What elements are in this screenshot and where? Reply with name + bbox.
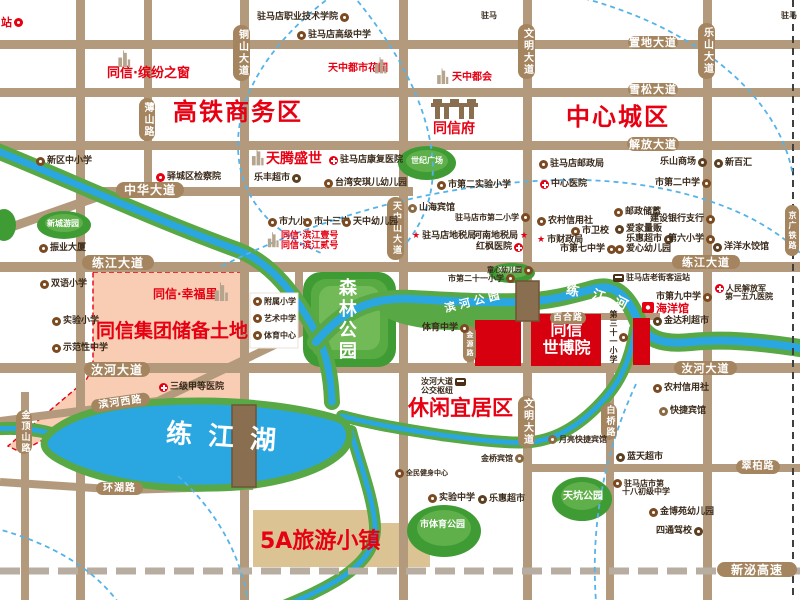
school-icon (428, 494, 437, 503)
school-icon (437, 181, 446, 190)
proj-label: 天腾盛世 (266, 152, 322, 167)
poi-text: 新区中小学 (47, 157, 92, 166)
poi-text: 乐惠超市 (626, 235, 662, 244)
school-icon (253, 297, 262, 306)
district-label: 休闲宜居区 (408, 397, 513, 419)
poi-text: 农村信用社 (548, 217, 593, 226)
poi-label: 体育中心 (253, 331, 296, 340)
hospital-icon (329, 156, 338, 165)
poi-label: 爱心幼儿园 (615, 245, 671, 254)
poi-label: 金博苑幼儿园 (649, 508, 714, 517)
poi-label: 驿城区检察院 (156, 173, 221, 182)
poi-text: 驻马 (781, 12, 797, 20)
poi-label: 第六小学 (668, 235, 715, 244)
poi-label: 第三十一小学 (609, 310, 628, 364)
poi-label: 驻马 (481, 12, 497, 20)
poi-label: 艺术中学 (253, 314, 296, 323)
poi-label: 蓝天超市 (616, 453, 663, 462)
poi-text: 山海宾馆 (419, 204, 455, 213)
poi-text: 驻马店老街客运站 (626, 274, 690, 282)
poi-text: 驻马店市第二小学 (455, 214, 519, 222)
poi-text: 爱心幼儿园 (626, 245, 671, 254)
road-label: 文明大道 (518, 396, 535, 448)
poi-text: 市第九中学 (656, 293, 701, 302)
poi-text: 新百汇 (725, 159, 752, 168)
poi-text: 驻马店邮政局 (550, 160, 604, 169)
proj-label: 同信府 (433, 122, 475, 137)
poi-text: 月亮快捷宾馆 (559, 436, 607, 444)
school-icon (303, 218, 312, 227)
car-icon (694, 527, 703, 536)
school-icon (253, 331, 262, 340)
school-icon (702, 179, 711, 188)
park-label: 市体育公园 (420, 521, 465, 530)
poi-label: 驻马店康复医院 (329, 156, 403, 165)
shop-icon (478, 495, 487, 504)
poi-label: 公交枢纽 (421, 387, 453, 395)
proj-label: 天中都会 (452, 73, 492, 84)
shop-icon (616, 453, 625, 462)
poi-text: 第六小学 (668, 235, 704, 244)
road-label: 练江大道 (672, 255, 740, 269)
poi-label: 农村信用社 (537, 217, 593, 226)
school-icon (268, 218, 277, 227)
poi-text: 农村信用社 (664, 384, 709, 393)
poi-text: 驻马店高级中学 (308, 31, 371, 40)
poi-label: 农村信用社 (653, 384, 709, 393)
poi-text: 爱家量贩 (626, 225, 662, 234)
school-icon (521, 213, 530, 222)
shop-icon (698, 158, 707, 167)
poi-label: 市第二十一小学 (448, 274, 515, 283)
hospital-icon (715, 284, 724, 293)
poi-label: 十八初级中学 (622, 488, 670, 496)
school-icon (324, 179, 333, 188)
district-label: 高铁商务区 (173, 100, 303, 125)
school-icon (613, 479, 622, 488)
bank-icon (653, 384, 662, 393)
park-label: 新城游园 (47, 220, 79, 228)
district-label: 5A旅游小镇 (260, 530, 380, 553)
poi-label: 三级甲等医院 (159, 383, 224, 392)
poi-text: 红枫医院 (476, 243, 512, 252)
poi-label: 中心医院 (540, 180, 587, 189)
proj-label: 同信·滨江贰号 (281, 242, 338, 251)
road-label: 翠柏路 (736, 460, 780, 474)
poi-label: 金达利超市 (653, 317, 709, 326)
poi-text: 公交枢纽 (421, 387, 453, 395)
hospital-icon (514, 243, 523, 252)
road-label: 环湖路 (96, 482, 143, 495)
poi-text: 金达利超市 (664, 317, 709, 326)
poi-text: 建设银行支行 (650, 215, 704, 224)
poi-text: 乐惠超市 (489, 495, 525, 504)
school-icon (506, 274, 515, 283)
poi-text: 站 (1, 17, 12, 28)
hotel-icon (548, 435, 557, 444)
building-icon (267, 230, 279, 249)
poi-text: 河南地税局 (473, 232, 518, 241)
poi-label: 驻马店高级中学 (297, 31, 371, 40)
poi-text: 双语小学 (51, 280, 87, 289)
poi-text: 实验中学 (439, 494, 475, 503)
poi-label: 红枫医院 (476, 243, 523, 252)
poi-label: 爱家量贩 (615, 225, 662, 234)
post-icon (614, 208, 623, 217)
poi-label: 体育中学 (422, 324, 469, 333)
poi-text: 蓝天超市 (627, 453, 663, 462)
school-icon (52, 317, 61, 326)
road-label: 汝河大道 (674, 361, 737, 375)
post-icon (539, 160, 548, 169)
poi-label: 建设银行支行 (650, 215, 715, 224)
road-label: 天中山大道 (387, 197, 404, 260)
poi-label: 市第九中学 (656, 293, 712, 302)
poi-text: 驿城区检察院 (167, 173, 221, 182)
poi-label: 四通驾校 (656, 527, 703, 536)
aquarium-icon (642, 302, 654, 313)
poi-label: 第一五九医院 (725, 293, 773, 301)
poi-label: 快捷宾馆 (659, 407, 706, 416)
road-label: 乐山大道 (698, 23, 715, 79)
poi-label: 天中幼儿园 (342, 218, 398, 227)
building-icon (251, 148, 264, 166)
poi-label: 实验小学 (52, 317, 99, 326)
road-label: 置地大道 (628, 36, 678, 49)
poi-label: 乐丰超市 (254, 174, 301, 183)
hospital-icon (159, 383, 168, 392)
poi-text: 乐丰超市 (254, 174, 290, 183)
poi-text: 驻马 (481, 12, 497, 20)
poi-label: 台湾安琪儿幼儿园 (324, 179, 407, 188)
road-label: 新泌高速 (717, 562, 797, 577)
location-map: 置地大道雪松大道解放大道中华大道练江大道练江大道汝河大道汝河大道滨河西路环湖路翠… (0, 0, 800, 600)
district-label: 中心城区 (566, 105, 670, 130)
poi-label: 双语小学 (40, 280, 87, 289)
building-icon (213, 282, 229, 301)
poi-text: 金桥宾馆 (481, 455, 513, 463)
road-label: 京广铁路 (785, 205, 799, 256)
road-label: 中华大道 (116, 182, 184, 198)
poi-text: 市九小 (279, 218, 306, 227)
school-icon (40, 280, 49, 289)
poi-label: 振业大厦 (39, 244, 86, 253)
gov-icon (156, 173, 165, 182)
poi-text: 四通驾校 (656, 527, 692, 536)
shop-icon (653, 317, 662, 326)
bus-icon (613, 274, 624, 282)
hotel-icon (659, 407, 668, 416)
star-icon: ★ (412, 232, 420, 241)
school-icon (52, 344, 61, 353)
poi-label: 附属小学 (253, 297, 296, 306)
poi-text: 市第二实验小学 (448, 181, 511, 190)
star-icon: ★ (537, 236, 545, 245)
road-label: 雪松大道 (628, 83, 678, 96)
poi-label: 金桥宾馆 (481, 454, 524, 463)
water-label: 练 (565, 284, 581, 300)
poi-text: 市第七中学 (560, 245, 605, 254)
school-icon (36, 157, 45, 166)
building-icon (436, 68, 449, 84)
poi-label: 示范性中学 (52, 344, 108, 353)
proj-label: 同信·缤纷之窗 (107, 67, 190, 81)
poi-label: 乐山商场 (660, 158, 707, 167)
bank-icon (706, 215, 715, 224)
poi-text: 艺术中学 (264, 315, 296, 323)
park-label: 天坑公园 (563, 492, 603, 503)
poi-label: 驻马店职业技术学院 (257, 13, 349, 22)
poi-label: 实验中学 (428, 494, 475, 503)
poi-text: 第一五九医院 (725, 293, 773, 301)
poi-label: 汝河大道 (421, 378, 466, 386)
school-icon (619, 333, 628, 342)
road-label: 汝河大道 (84, 362, 150, 377)
district-label: 同信集团储备土地 (96, 322, 248, 342)
shop-icon (713, 243, 722, 252)
road-label: 练江大道 (82, 255, 154, 270)
school-icon (342, 218, 351, 227)
poi-text: 示范性中学 (63, 344, 108, 353)
park-label: 森林公园 (336, 278, 355, 362)
poi-text: 驻马店康复医院 (340, 156, 403, 165)
poi-text: 体育中心 (264, 332, 296, 340)
road-label: 解放大道 (627, 137, 679, 151)
poi-label: 洋洋水饺馆 (713, 243, 769, 252)
train-icon (14, 18, 23, 27)
poi-text: 汝河大道 (421, 378, 453, 386)
poi-text: 市第二十一小学 (448, 275, 504, 283)
school-icon (524, 266, 533, 275)
shop-icon (615, 225, 624, 234)
hotel-icon (515, 454, 524, 463)
dot-icon (395, 469, 404, 478)
poi-text: 市第二中学 (655, 179, 700, 188)
poi-text: 金博苑幼儿园 (660, 508, 714, 517)
poi-text: 台湾安琪儿幼儿园 (335, 179, 407, 188)
road-label: 文明大道 (518, 24, 535, 79)
bank-icon (537, 217, 546, 226)
poi-label: 月亮快捷宾馆 (548, 435, 607, 444)
poi-label: 乐惠超市 (478, 495, 525, 504)
poi-text: 驻马店职业技术学院 (257, 13, 338, 22)
poi-text: 十八初级中学 (622, 488, 670, 496)
road-label: 铜山大道 (233, 25, 250, 81)
poi-text: 附属小学 (264, 298, 296, 306)
poi-label: 全民健身中心 (395, 469, 448, 478)
shop-icon (292, 174, 301, 183)
school-icon (340, 13, 349, 22)
poi-text: 天中幼儿园 (353, 218, 398, 227)
poi-label: ★驻马店地税局 (412, 232, 476, 241)
expo-label: 世博院 (533, 340, 600, 357)
poi-text: 三级甲等医院 (170, 383, 224, 392)
poi-text: 全民健身中心 (406, 470, 448, 477)
poi-label: 驻马 (781, 12, 797, 20)
bus-icon (455, 378, 466, 386)
gate-icon (431, 97, 478, 120)
poi-label: 新百汇 (714, 159, 752, 168)
hospital-icon (540, 180, 549, 189)
poi-label: 站 (1, 17, 23, 28)
poi-label: 驻马店市第二小学 (455, 213, 530, 222)
poi-text: 中心医院 (551, 180, 587, 189)
school-icon (297, 31, 306, 40)
school-icon (649, 508, 658, 517)
poi-text: 体育中学 (422, 324, 458, 333)
poi-label: 新区中小学 (36, 157, 92, 166)
road-label: 金顶山路 (16, 410, 32, 454)
poi-text: 实验小学 (63, 317, 99, 326)
building-icon (374, 56, 387, 74)
poi-text: 振业大厦 (50, 244, 86, 253)
poi-text: 市卫校 (582, 227, 609, 236)
poi-text: 驻马店地税局 (422, 232, 476, 241)
poi-label: 乐惠超市 (626, 235, 673, 244)
poi-text: 快捷宾馆 (670, 407, 706, 416)
proj-label: 海洋馆 (656, 303, 689, 315)
hotel-icon (408, 204, 417, 213)
poi-label: 市第二中学 (655, 179, 711, 188)
school-icon (615, 245, 624, 254)
poi-label: 市九小 (268, 218, 306, 227)
shop-icon (714, 159, 723, 168)
poi-label: 山海宾馆 (408, 204, 455, 213)
poi-label: 河南地税局★ (473, 232, 528, 241)
road-label: 百合路 (550, 312, 586, 324)
road-label: 薄山路 (139, 98, 155, 141)
poi-label: 市第二实验小学 (437, 181, 511, 190)
poi-label: 市第七中学 (560, 245, 616, 254)
dot-icon (39, 244, 48, 253)
star-icon: ★ (520, 232, 528, 241)
poi-label: 驻马店老街客运站 (613, 274, 690, 282)
school-icon (460, 324, 469, 333)
poi-text: 乐山商场 (660, 158, 696, 167)
school-icon (703, 293, 712, 302)
poi-text: 洋洋水饺馆 (724, 243, 769, 252)
school-icon (253, 314, 262, 323)
proj-label: 同信·幸福里 (153, 288, 218, 301)
poi-label: 驻马店邮政局 (539, 160, 604, 169)
poi-text: 童心幼儿园 (487, 267, 522, 274)
poi-text: 第三十一小学 (609, 310, 617, 364)
park-label: 世纪广场 (411, 157, 443, 165)
expo-label: 同信 (533, 322, 600, 339)
building-icon (112, 50, 136, 67)
